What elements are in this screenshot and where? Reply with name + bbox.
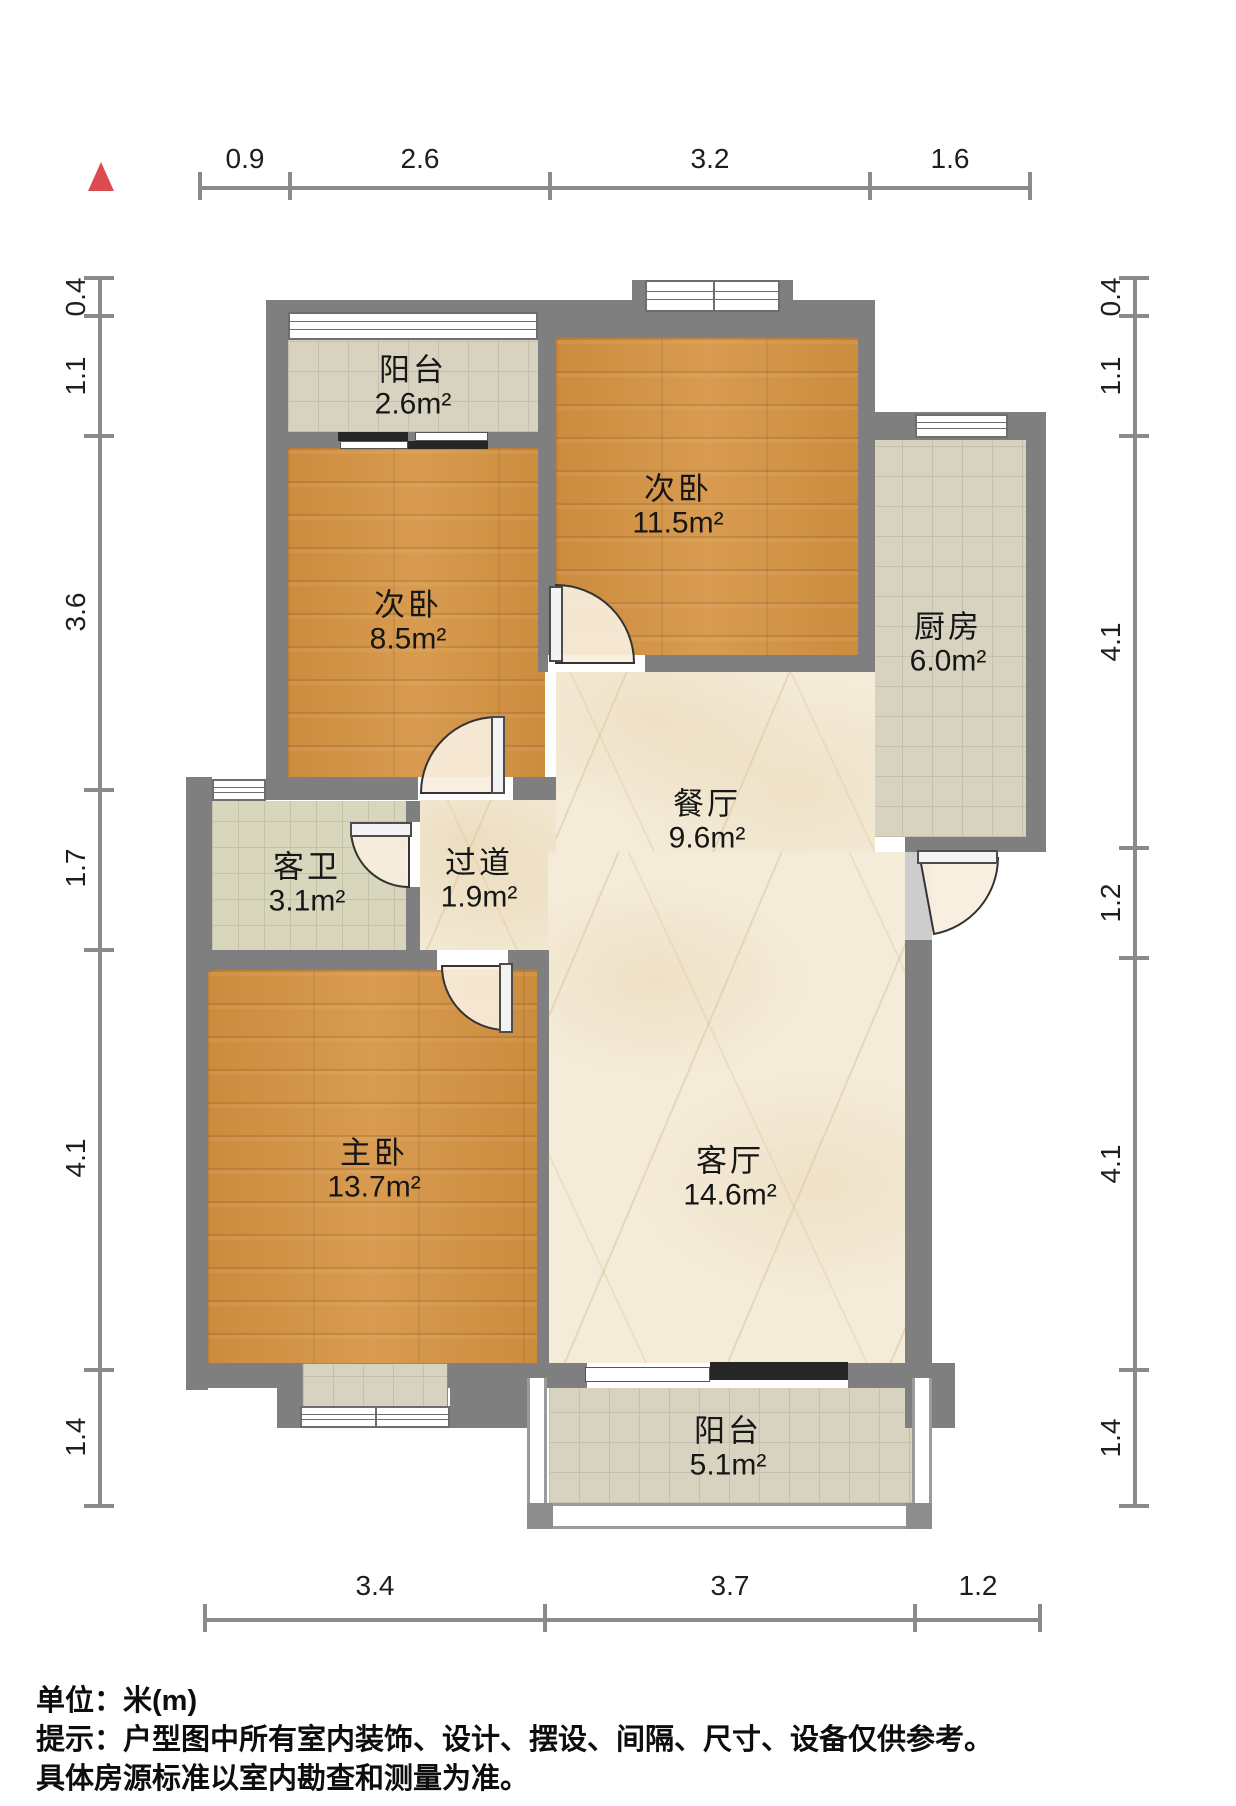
door-swing-bedroom-large bbox=[556, 585, 634, 663]
floor-plan-canvas: 阳台2.6m² 次卧8.5m² 次卧11.5m² 厨房6.0m² 客卫3.1m²… bbox=[0, 0, 1236, 1806]
dim-bottom-3: 1.2 bbox=[959, 1570, 998, 1602]
room-label-dining: 餐厅9.6m² bbox=[669, 788, 746, 855]
door-swing-entry bbox=[920, 858, 998, 934]
room-label-bathroom: 客卫3.1m² bbox=[269, 851, 346, 918]
dim-bottom-1: 3.4 bbox=[356, 1570, 395, 1602]
dim-top-1: 0.9 bbox=[226, 143, 265, 175]
dim-top-3: 3.2 bbox=[691, 143, 730, 175]
door-leaf-bedroom-large bbox=[549, 586, 563, 662]
dim-left-5: 4.1 bbox=[60, 1139, 92, 1178]
room-label-bedroom-small: 次卧8.5m² bbox=[370, 589, 447, 656]
dim-right-3: 4.1 bbox=[1095, 623, 1127, 662]
dim-bottom-2: 3.7 bbox=[711, 1570, 750, 1602]
dim-top-2: 2.6 bbox=[401, 143, 440, 175]
door-swing-bathroom bbox=[351, 829, 409, 887]
room-label-master-bedroom: 主卧13.7m² bbox=[327, 1137, 420, 1204]
door-swing-bedroom-small bbox=[421, 717, 497, 793]
dim-right-1: 0.4 bbox=[1095, 278, 1127, 317]
room-label-hallway: 过道1.9m² bbox=[441, 847, 518, 914]
door-leaf-master bbox=[499, 963, 513, 1033]
door-leaf-bedroom-small bbox=[491, 716, 505, 794]
dim-left-2: 1.1 bbox=[60, 357, 92, 396]
door-leaf-bathroom bbox=[350, 822, 412, 837]
dim-top-4: 1.6 bbox=[931, 143, 970, 175]
room-label-living: 客厅14.6m² bbox=[683, 1145, 776, 1212]
door-swing-arcs bbox=[0, 0, 1236, 1806]
dim-left-3: 3.6 bbox=[60, 593, 92, 632]
room-label-balcony-bottom: 阳台5.1m² bbox=[690, 1415, 767, 1482]
dim-right-4: 1.2 bbox=[1095, 884, 1127, 923]
room-label-balcony-top: 阳台2.6m² bbox=[375, 354, 452, 421]
dim-left-1: 0.4 bbox=[60, 278, 92, 317]
door-swing-master bbox=[442, 966, 506, 1030]
dim-right-6: 1.4 bbox=[1095, 1419, 1127, 1458]
dim-left-4: 1.7 bbox=[60, 849, 92, 888]
room-label-kitchen: 厨房6.0m² bbox=[910, 611, 987, 678]
door-leaf-entry bbox=[917, 850, 998, 864]
dim-left-6: 1.4 bbox=[60, 1418, 92, 1457]
dim-right-5: 4.1 bbox=[1095, 1145, 1127, 1184]
dim-right-2: 1.1 bbox=[1095, 357, 1127, 396]
room-label-bedroom-large: 次卧11.5m² bbox=[632, 473, 723, 540]
